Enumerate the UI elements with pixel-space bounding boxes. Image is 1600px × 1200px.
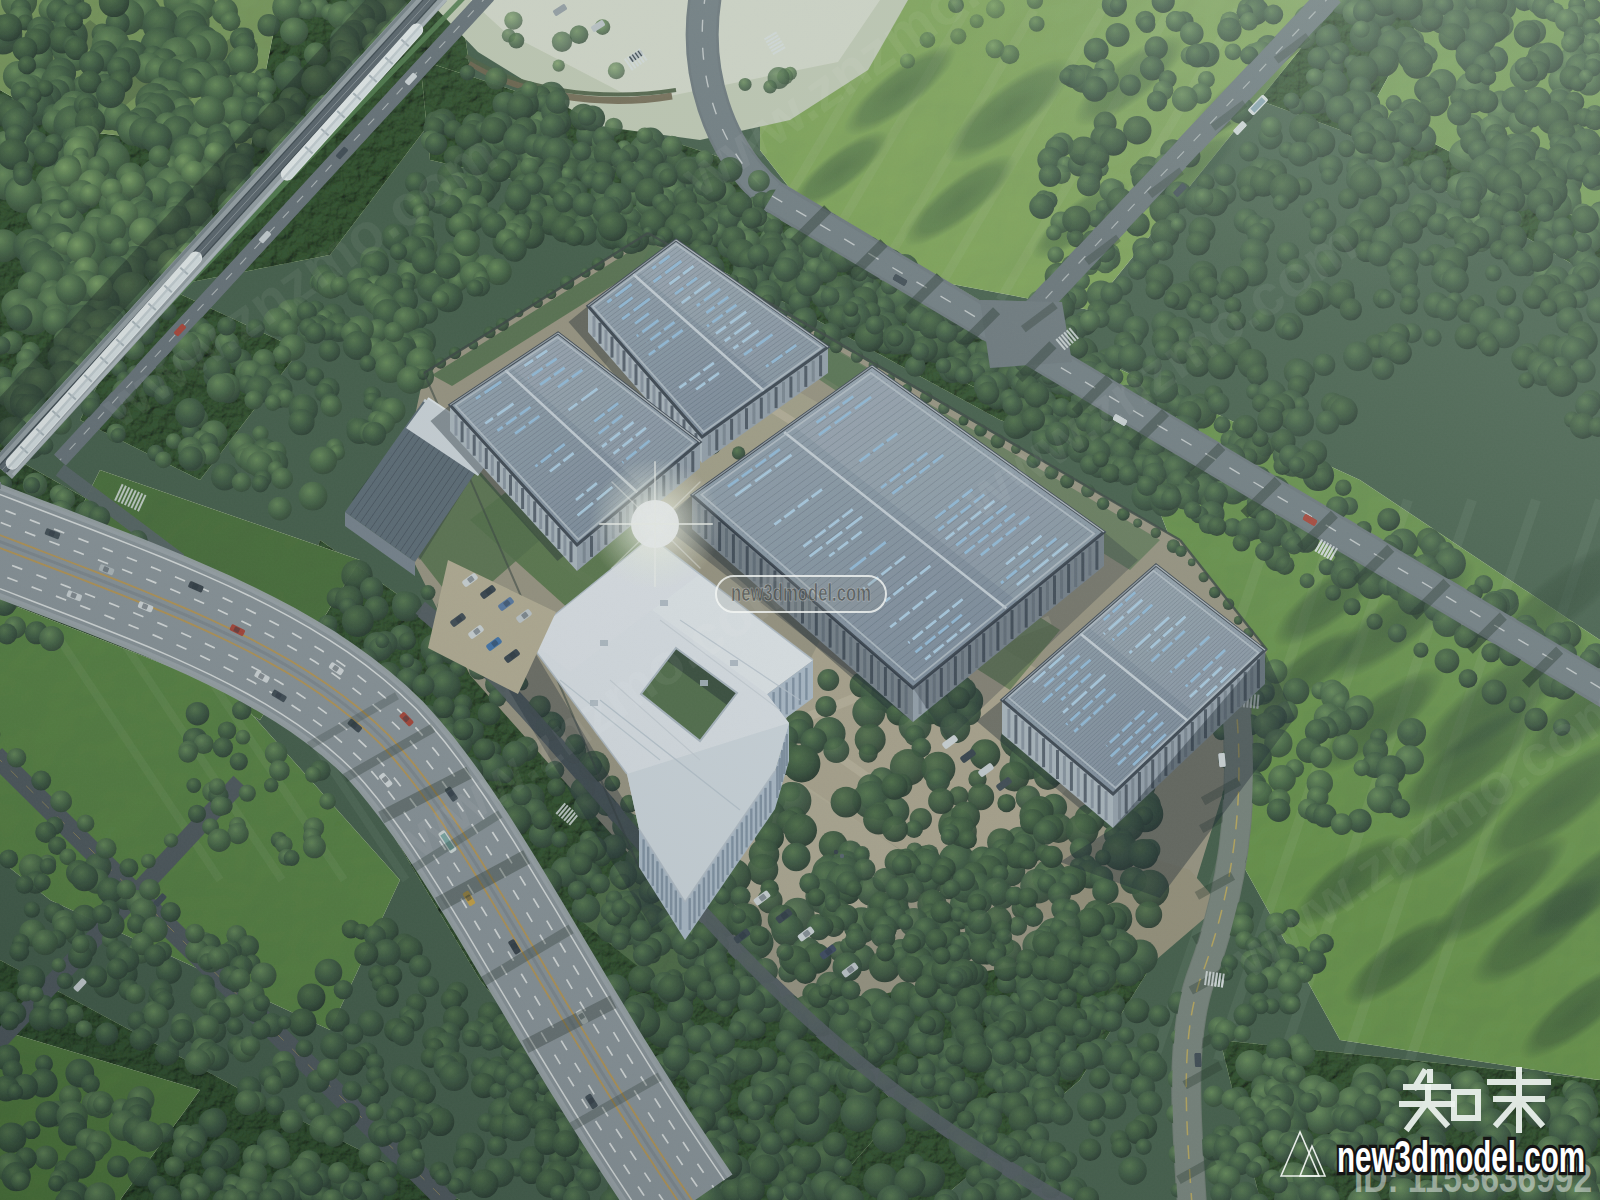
svg-text:new3dmodel.com: new3dmodel.com (731, 579, 871, 606)
svg-text:new3dmodel.com: new3dmodel.com (1337, 1132, 1585, 1181)
